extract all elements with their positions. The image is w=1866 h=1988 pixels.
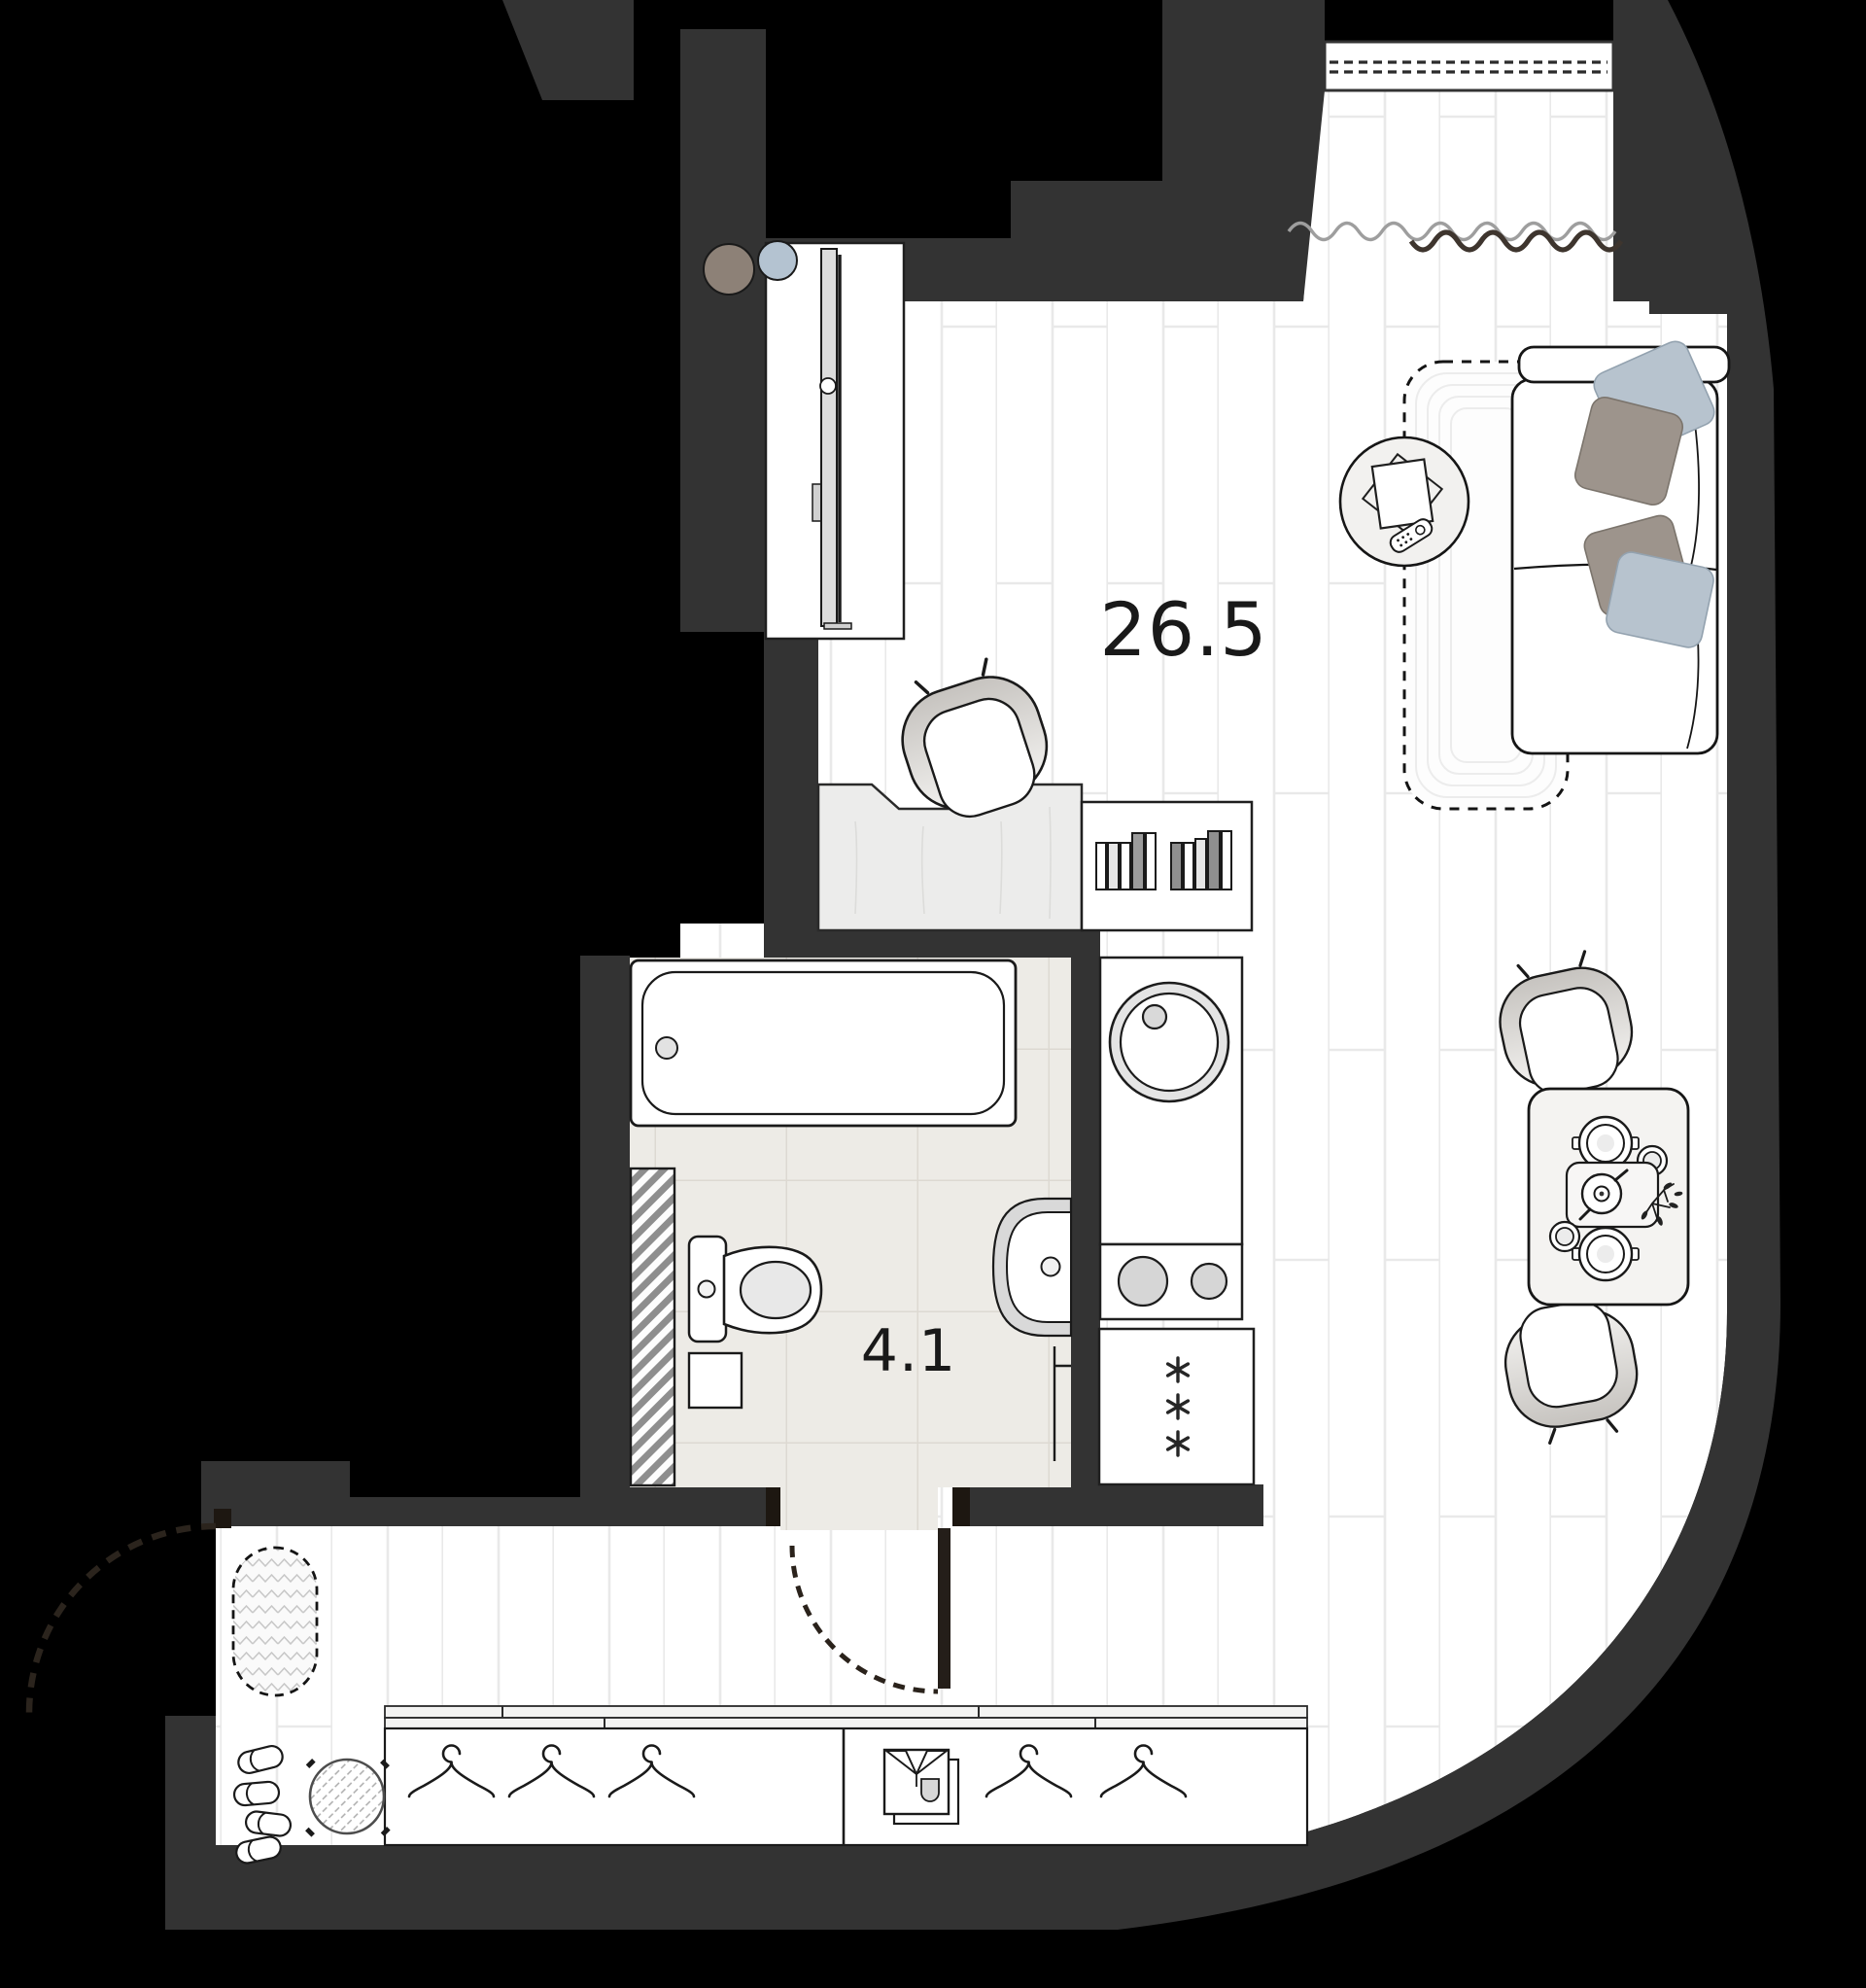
- wall-bath-bottom-left: [580, 1487, 766, 1526]
- wall-bath-right: [1071, 958, 1100, 1526]
- burner-large: [1119, 1257, 1167, 1306]
- door-jamb-left: [766, 1487, 780, 1526]
- tv-mount: [812, 484, 821, 521]
- wall-under-fridge: [1100, 1484, 1263, 1526]
- flush-button: [699, 1281, 715, 1298]
- table-book: [1372, 460, 1433, 529]
- area-label-bathroom: 4.1: [861, 1317, 956, 1385]
- wall-hall-top: [350, 1497, 583, 1526]
- wall-left-upper: [680, 29, 766, 632]
- sink-faucet: [1042, 1258, 1060, 1276]
- toilet: [689, 1237, 821, 1342]
- floor-plan: 4.1: [0, 0, 1866, 1988]
- bathtub: [631, 960, 1016, 1126]
- ventilation-shaft: [631, 1168, 674, 1485]
- coffee-table: [1340, 437, 1469, 566]
- bathtub-drain: [656, 1037, 677, 1059]
- kitchen: [1099, 958, 1254, 1484]
- door-jamb-right: [952, 1487, 970, 1526]
- wall-left-lower: [764, 632, 818, 930]
- decor-circle-brown: [704, 244, 754, 295]
- area-label-living: 26.5: [1099, 586, 1267, 673]
- bathroom-door-opening: [780, 1487, 938, 1530]
- sofa: [1512, 337, 1729, 753]
- floor-plan-svg: 4.1: [0, 0, 1866, 1988]
- wardrobe: [385, 1706, 1307, 1845]
- wall-hall-left: [165, 1716, 216, 1845]
- shirt-icon: [884, 1750, 958, 1824]
- bathroom-door-leaf: [938, 1528, 950, 1689]
- bathroom-sink: [993, 1199, 1071, 1336]
- bookshelf: [1082, 802, 1252, 930]
- cup: [1550, 1222, 1579, 1251]
- wardrobe-rail-2: [385, 1718, 1307, 1728]
- kitchen-faucet: [1143, 1005, 1166, 1029]
- decor-circle-blue: [758, 241, 797, 280]
- entry-door-jamb: [214, 1509, 231, 1528]
- fridge: [1099, 1329, 1254, 1484]
- balcony-window: [1325, 42, 1613, 90]
- wardrobe-rail-1: [385, 1706, 1307, 1718]
- burner-small: [1192, 1264, 1227, 1299]
- dining-table: [1529, 1089, 1688, 1305]
- wall-bath-left: [580, 956, 630, 1526]
- washer: [689, 1353, 742, 1408]
- entry-rug: [233, 1548, 317, 1695]
- wall-bath-bottom-right: [970, 1487, 1100, 1526]
